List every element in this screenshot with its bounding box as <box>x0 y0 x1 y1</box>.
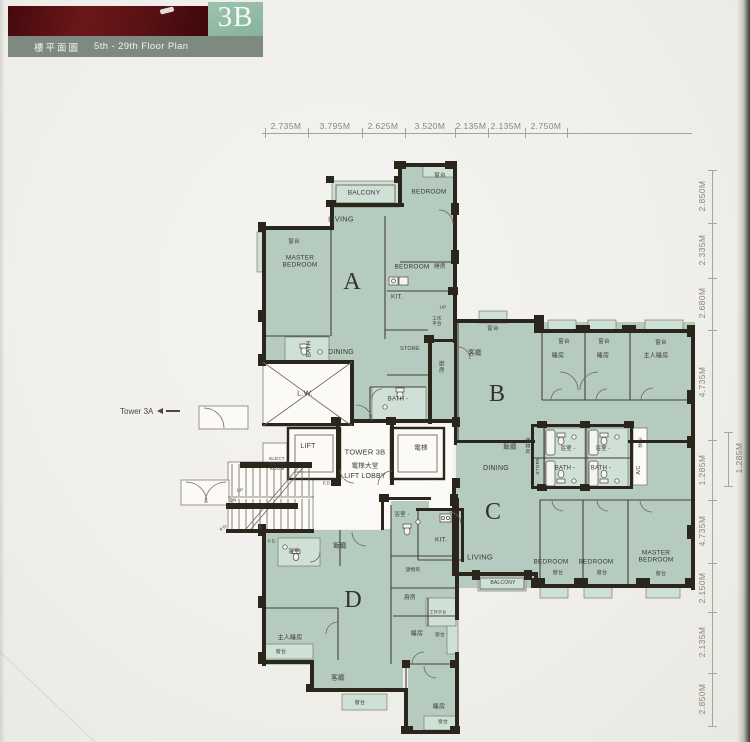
dimension-label: 2.750M <box>531 121 562 131</box>
dimension-label: 2.135M <box>491 121 522 131</box>
dimension-tick <box>405 128 406 138</box>
dimension-line <box>262 133 692 134</box>
dimension-tick <box>708 278 717 279</box>
dimension-tick <box>724 432 733 433</box>
dimension-label: 2.680M <box>697 288 707 319</box>
dimension-line <box>712 170 713 726</box>
dimension-label: 2.850M <box>697 684 707 715</box>
dimension-tick <box>708 726 717 727</box>
tower-ref: Tower 3A <box>120 405 200 417</box>
dimension-label: 2.150M <box>697 573 707 604</box>
dimension-tick <box>708 330 717 331</box>
dimension-tick <box>265 128 266 138</box>
dimension-label: 2.135M <box>697 627 707 658</box>
left-arrow-icon <box>157 408 163 414</box>
left-arrow-line <box>166 410 180 411</box>
tower-ref-label: Tower 3A <box>120 407 153 416</box>
dimension-label: 3.795M <box>320 121 351 131</box>
dimension-line <box>728 432 729 486</box>
dimension-label: 1.285M <box>697 455 707 486</box>
dimension-label: 4.735M <box>697 516 707 547</box>
dimension-tick <box>567 128 568 138</box>
dimension-label: 3.520M <box>415 121 446 131</box>
dimension-tick <box>308 128 309 138</box>
dimension-tick <box>708 223 717 224</box>
dimension-tick <box>708 500 717 501</box>
dimension-label: 2.625M <box>368 121 399 131</box>
dimension-tick <box>362 128 363 138</box>
dimension-tick <box>724 486 733 487</box>
dimension-tick <box>708 170 717 171</box>
dimension-label: 2.850M <box>697 181 707 212</box>
dimension-label: 2.135M <box>456 121 487 131</box>
floor-plan-drawing <box>0 0 750 742</box>
dimension-label: 2.335M <box>697 235 707 266</box>
dimension-tick <box>708 440 717 441</box>
scan-edge-shadow <box>737 0 750 742</box>
dimension-tick <box>488 128 489 138</box>
dimension-tick <box>708 612 717 613</box>
dimension-tick <box>525 128 526 138</box>
dimension-label: 2.735M <box>271 121 302 131</box>
dimension-tick <box>708 563 717 564</box>
floor-plan-page: 3B 樓平面圖 5th - 29th Floor Plan <box>0 0 750 742</box>
dimension-tick <box>708 673 717 674</box>
dimension-label: 4.735M <box>697 367 707 398</box>
scan-left-shadow <box>0 0 5 742</box>
